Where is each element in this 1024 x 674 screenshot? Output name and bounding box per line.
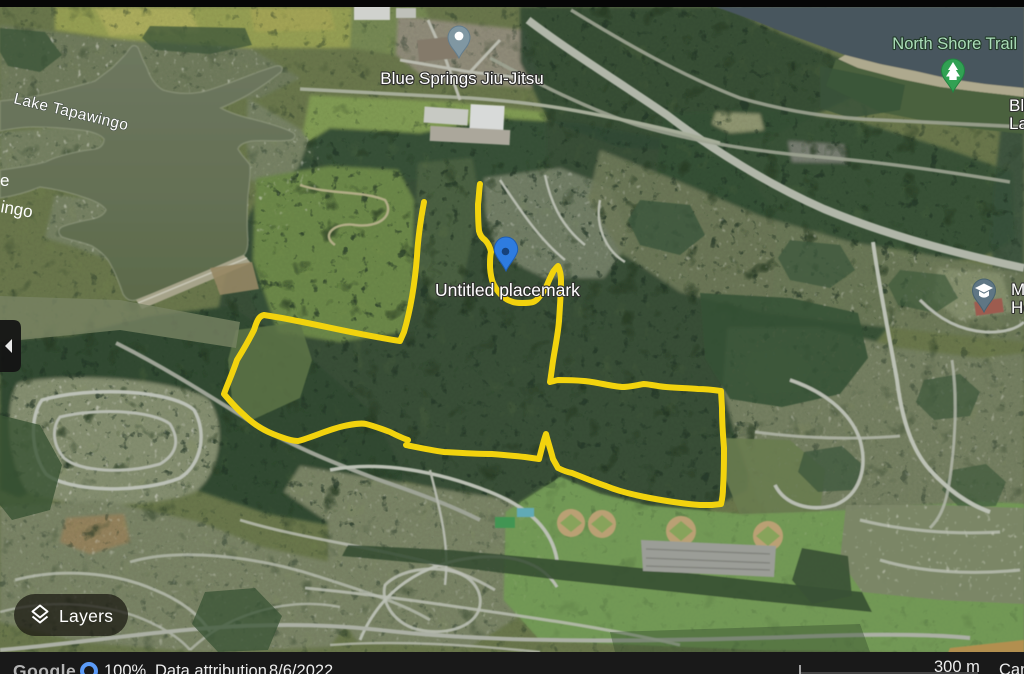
svg-text:Google: Google xyxy=(13,661,76,674)
svg-text:La: La xyxy=(1009,114,1024,133)
svg-text:North Shore Trail: North Shore Trail xyxy=(892,35,1017,53)
svg-text:Layers: Layers xyxy=(59,606,113,626)
svg-text:e: e xyxy=(0,171,9,190)
svg-text:8/6/2022: 8/6/2022 xyxy=(269,662,333,674)
svg-text:300 m: 300 m xyxy=(934,658,980,674)
svg-text:Ho: Ho xyxy=(1011,298,1024,317)
svg-text:Data attribution: Data attribution xyxy=(155,662,267,674)
svg-text:Bl: Bl xyxy=(1009,96,1024,115)
svg-text:Cam: Cam xyxy=(999,661,1024,674)
svg-text:M: M xyxy=(1011,280,1024,299)
svg-text:Blue Springs Jiu-Jitsu: Blue Springs Jiu-Jitsu xyxy=(380,69,543,88)
svg-text:100%: 100% xyxy=(104,662,147,674)
svg-text:Untitled placemark: Untitled placemark xyxy=(435,280,580,300)
